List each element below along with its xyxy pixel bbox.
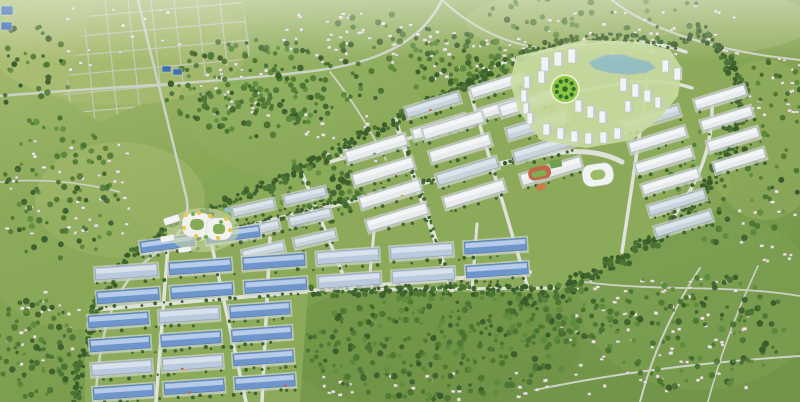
tree xyxy=(341,200,345,204)
tree xyxy=(309,285,314,290)
tree xyxy=(494,334,498,338)
tree xyxy=(709,186,713,190)
tree xyxy=(306,348,310,352)
tree xyxy=(525,343,530,348)
tree xyxy=(567,297,572,302)
tree xyxy=(444,395,451,402)
tree xyxy=(543,306,549,312)
tree xyxy=(493,390,498,395)
tree xyxy=(402,361,406,365)
tree xyxy=(503,161,507,165)
tree xyxy=(482,356,486,360)
village-house xyxy=(327,392,331,395)
tree xyxy=(672,383,679,390)
tree xyxy=(44,89,50,95)
tree xyxy=(571,319,577,325)
tree xyxy=(61,311,64,314)
tree xyxy=(442,335,446,339)
village-house xyxy=(12,179,16,182)
tower-shaded-side xyxy=(528,103,530,114)
tree xyxy=(634,361,640,367)
village-house xyxy=(793,213,797,216)
tree xyxy=(488,64,494,70)
tree xyxy=(407,150,411,154)
tower-shaded-side xyxy=(529,76,531,88)
tower-shaded-side xyxy=(526,90,528,102)
village-house xyxy=(240,69,243,71)
tree xyxy=(29,359,34,364)
tree xyxy=(519,307,523,311)
tree xyxy=(363,319,367,323)
tree xyxy=(288,186,292,190)
roof-accent-yellow xyxy=(184,213,188,217)
tree xyxy=(73,362,79,368)
village-house xyxy=(770,201,774,204)
tree xyxy=(363,382,367,386)
tree xyxy=(457,316,461,320)
tree xyxy=(396,296,402,302)
tree xyxy=(340,308,347,315)
tree xyxy=(378,88,384,94)
tree xyxy=(403,317,409,323)
tree xyxy=(415,69,420,74)
tree xyxy=(755,81,760,86)
tree xyxy=(601,323,605,327)
tree xyxy=(330,176,336,182)
tree xyxy=(256,102,260,106)
tree xyxy=(497,62,500,65)
tree xyxy=(576,331,580,335)
tree xyxy=(409,288,415,294)
tree xyxy=(451,310,454,313)
tree xyxy=(252,92,258,98)
tree xyxy=(36,217,42,223)
tree xyxy=(351,71,355,75)
tree xyxy=(743,319,747,323)
tree xyxy=(61,184,67,190)
village-house xyxy=(603,384,606,387)
tree xyxy=(253,111,258,116)
tree xyxy=(475,69,479,73)
tree xyxy=(330,190,337,197)
tree xyxy=(249,69,253,73)
tree xyxy=(101,195,107,201)
tree xyxy=(733,275,738,280)
tree xyxy=(593,322,598,327)
tree xyxy=(710,239,715,244)
village-house xyxy=(223,93,226,95)
tree xyxy=(510,324,516,330)
tree xyxy=(259,185,263,189)
village-house xyxy=(763,258,767,261)
tree xyxy=(452,286,455,289)
tree xyxy=(530,288,534,292)
tree xyxy=(206,123,212,129)
tree xyxy=(721,197,726,202)
tree xyxy=(70,176,75,181)
park-center-tree xyxy=(562,86,568,92)
tree xyxy=(360,375,367,382)
tree xyxy=(28,139,31,142)
village-house xyxy=(775,190,779,194)
tree xyxy=(71,371,75,375)
tree xyxy=(429,229,432,232)
tree xyxy=(454,66,460,72)
tree xyxy=(692,143,696,147)
tower-shaded-side xyxy=(650,90,652,102)
park-tree xyxy=(559,80,563,84)
tree xyxy=(430,222,432,224)
tree xyxy=(382,300,386,304)
tree xyxy=(715,181,718,184)
tree xyxy=(511,351,518,358)
village-house xyxy=(738,209,741,212)
tree xyxy=(275,73,282,80)
tree xyxy=(448,323,453,328)
tree xyxy=(459,361,463,365)
tree xyxy=(725,216,731,222)
tree xyxy=(684,295,689,300)
tree xyxy=(243,188,248,193)
residential-tower xyxy=(521,90,528,102)
roof-accent-yellow xyxy=(197,211,201,215)
tree xyxy=(298,111,304,117)
tree xyxy=(292,66,296,70)
tree xyxy=(717,207,721,211)
tree xyxy=(15,351,18,354)
village-house xyxy=(516,395,521,398)
tree xyxy=(308,157,313,162)
village-house xyxy=(411,387,415,390)
tree xyxy=(356,61,361,66)
residential-tower xyxy=(523,103,530,114)
residential-tower xyxy=(599,111,607,123)
tree xyxy=(314,102,318,106)
tree xyxy=(532,370,536,374)
tree xyxy=(8,68,13,73)
tree xyxy=(49,305,54,310)
tree xyxy=(605,347,611,353)
tree xyxy=(439,318,445,324)
tree xyxy=(61,152,68,159)
tree xyxy=(194,63,199,68)
tree xyxy=(58,358,63,363)
tree xyxy=(413,175,416,178)
tree xyxy=(516,322,521,327)
tree xyxy=(65,323,69,327)
tree xyxy=(93,135,98,140)
tree xyxy=(468,383,472,387)
truck-accent xyxy=(240,340,243,342)
tree xyxy=(269,215,272,218)
tree xyxy=(467,285,471,289)
tree xyxy=(71,140,75,144)
tree xyxy=(507,315,513,321)
village-house xyxy=(588,393,591,396)
village-house xyxy=(770,245,774,248)
tree xyxy=(197,108,201,112)
tree xyxy=(541,290,546,295)
tree xyxy=(379,311,385,317)
tree xyxy=(35,302,40,307)
village-house xyxy=(220,73,224,76)
tree xyxy=(522,379,525,382)
village-house xyxy=(69,68,73,72)
tree xyxy=(739,282,743,286)
tree xyxy=(321,330,326,335)
park-tree xyxy=(572,87,576,91)
tree xyxy=(340,364,343,367)
tree xyxy=(399,344,404,349)
village-house xyxy=(451,390,455,393)
village-house xyxy=(323,385,326,388)
tree xyxy=(437,393,443,399)
tree xyxy=(281,99,285,103)
tree xyxy=(124,254,128,258)
village-house xyxy=(264,69,268,73)
tree xyxy=(398,354,402,358)
tree xyxy=(34,187,39,192)
residential-tower xyxy=(543,124,551,135)
tree xyxy=(284,80,288,84)
village-house xyxy=(720,341,724,344)
tree xyxy=(438,356,442,360)
tower-shaded-side xyxy=(660,97,662,108)
tree xyxy=(0,371,5,376)
village-house xyxy=(639,379,642,382)
tree xyxy=(508,160,512,164)
tree xyxy=(532,341,536,345)
tree xyxy=(296,208,300,212)
tree xyxy=(314,93,321,100)
tree xyxy=(310,75,316,81)
tree xyxy=(340,320,343,323)
tree xyxy=(754,223,760,229)
tree xyxy=(440,296,445,301)
tree xyxy=(67,197,73,203)
tree xyxy=(609,324,612,327)
roof-garden xyxy=(191,212,195,216)
village-house xyxy=(69,146,73,149)
tree xyxy=(34,360,40,366)
tree xyxy=(302,204,306,208)
tree xyxy=(638,316,643,321)
tree xyxy=(168,81,174,87)
tree xyxy=(92,238,96,242)
tree xyxy=(216,89,222,95)
village-house xyxy=(425,375,429,378)
tree xyxy=(330,293,336,299)
village-house xyxy=(259,73,263,76)
tree xyxy=(22,372,27,377)
tree xyxy=(738,330,741,333)
village-house xyxy=(717,372,721,375)
village-house xyxy=(340,154,344,158)
tree xyxy=(608,261,614,267)
tree xyxy=(98,235,102,239)
tree xyxy=(217,76,221,80)
tree xyxy=(394,320,398,324)
tree xyxy=(703,323,707,327)
village-house xyxy=(37,210,40,213)
tree xyxy=(771,328,777,334)
tree xyxy=(699,283,702,286)
tree xyxy=(80,244,85,249)
tree xyxy=(27,118,32,123)
tree xyxy=(619,260,624,265)
tree xyxy=(422,197,426,201)
village-house xyxy=(688,287,693,290)
tree xyxy=(220,123,226,129)
village-house xyxy=(322,376,325,379)
tree xyxy=(714,358,721,365)
village-house xyxy=(650,279,654,282)
tree xyxy=(750,199,753,202)
village-house xyxy=(42,166,46,169)
tree xyxy=(407,389,414,396)
roof-garden xyxy=(204,235,208,239)
tree xyxy=(289,212,291,214)
tree xyxy=(600,298,605,303)
tree xyxy=(407,336,412,341)
tree xyxy=(77,196,82,201)
tree xyxy=(740,337,746,343)
village-house xyxy=(624,290,628,292)
tree xyxy=(430,335,436,341)
tree xyxy=(453,78,459,84)
tree xyxy=(400,382,405,387)
tree xyxy=(244,82,249,87)
tree xyxy=(473,360,477,364)
village-house xyxy=(218,69,222,72)
tree xyxy=(422,179,426,183)
tree xyxy=(317,156,322,161)
tower-shaded-side xyxy=(630,101,632,112)
tree xyxy=(704,274,710,280)
tree xyxy=(544,345,549,350)
village-house xyxy=(200,85,203,87)
tree xyxy=(397,114,402,119)
tree xyxy=(750,229,757,236)
tree xyxy=(333,348,339,354)
tree xyxy=(650,321,655,326)
tree xyxy=(239,197,242,200)
tree xyxy=(429,364,432,367)
tree xyxy=(774,73,777,76)
tree xyxy=(578,271,582,275)
tree xyxy=(479,391,483,395)
tree xyxy=(419,350,424,355)
tree xyxy=(526,379,532,385)
village-house xyxy=(351,391,354,393)
tree xyxy=(784,148,788,152)
tree xyxy=(426,392,432,398)
tree xyxy=(337,208,340,211)
tree xyxy=(328,64,333,69)
tree xyxy=(629,289,634,294)
tree xyxy=(407,373,411,377)
tree xyxy=(525,337,531,343)
tree xyxy=(573,280,578,285)
tree xyxy=(767,186,771,190)
tree xyxy=(460,65,467,72)
tree xyxy=(709,372,716,379)
tree xyxy=(296,166,302,172)
tree xyxy=(116,198,120,202)
tree xyxy=(472,328,476,332)
village-house xyxy=(545,385,549,388)
tree xyxy=(658,300,664,306)
tree xyxy=(56,324,62,330)
residential-tower xyxy=(587,106,595,118)
tree xyxy=(433,395,436,398)
village-house xyxy=(234,63,238,66)
tree xyxy=(422,75,427,80)
tree xyxy=(269,189,275,195)
tree xyxy=(17,202,22,207)
tree xyxy=(679,369,683,373)
tree xyxy=(795,120,799,124)
tree xyxy=(554,321,561,328)
village-house xyxy=(742,222,745,225)
tree xyxy=(468,330,472,334)
tree xyxy=(784,98,788,102)
tree xyxy=(734,150,738,154)
village-house xyxy=(394,384,398,387)
tree xyxy=(466,78,472,84)
tree xyxy=(757,294,762,299)
village-house xyxy=(790,82,794,85)
tree xyxy=(441,375,446,380)
tree xyxy=(18,300,23,305)
tree xyxy=(733,82,737,86)
tree xyxy=(338,190,344,196)
tree xyxy=(559,328,565,334)
tree xyxy=(265,123,269,127)
tree xyxy=(342,145,347,150)
tree xyxy=(374,290,378,294)
tree xyxy=(515,296,521,302)
tree xyxy=(740,355,747,362)
village-house xyxy=(789,254,792,256)
tree xyxy=(283,179,289,185)
tree xyxy=(725,305,729,309)
tree xyxy=(103,146,108,151)
tree xyxy=(509,309,515,315)
tree xyxy=(388,64,394,70)
tree xyxy=(771,224,778,231)
tree xyxy=(538,326,541,329)
tree xyxy=(568,285,574,291)
village-house xyxy=(74,217,78,220)
tree xyxy=(778,74,782,78)
tree xyxy=(720,318,723,321)
tree xyxy=(245,120,252,127)
tree xyxy=(631,338,636,343)
tree xyxy=(300,83,306,89)
tree xyxy=(373,96,377,100)
tree xyxy=(374,373,380,379)
tree xyxy=(129,248,134,253)
tree xyxy=(546,333,551,338)
tree xyxy=(527,305,531,309)
village-house xyxy=(744,386,748,390)
tree xyxy=(106,231,112,237)
tree xyxy=(42,126,45,129)
tree xyxy=(401,368,407,374)
tree xyxy=(294,122,297,125)
tree xyxy=(680,342,686,348)
